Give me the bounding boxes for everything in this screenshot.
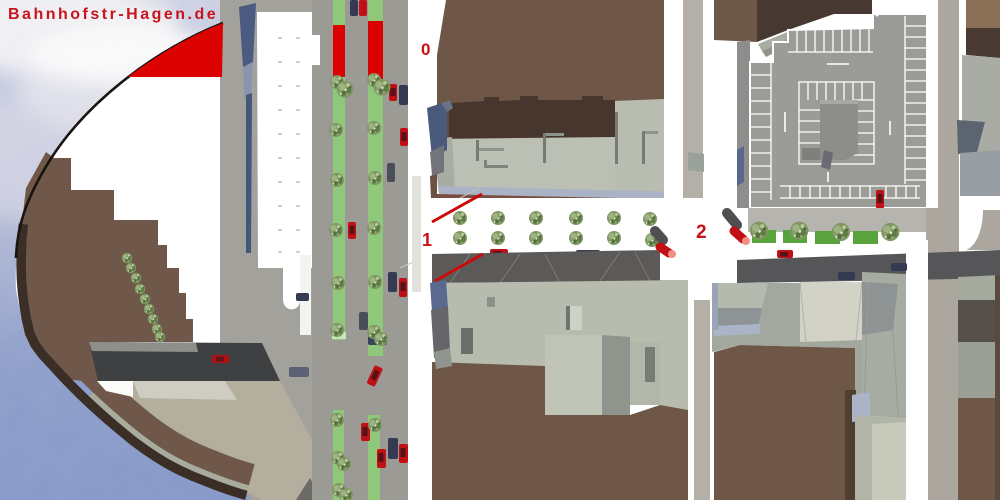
svg-text:Bahnhofstr-Hagen.de: Bahnhofstr-Hagen.de <box>8 6 218 23</box>
svg-text:0: 0 <box>421 40 430 59</box>
svg-text:2: 2 <box>696 222 707 243</box>
svg-text:1: 1 <box>422 230 432 250</box>
